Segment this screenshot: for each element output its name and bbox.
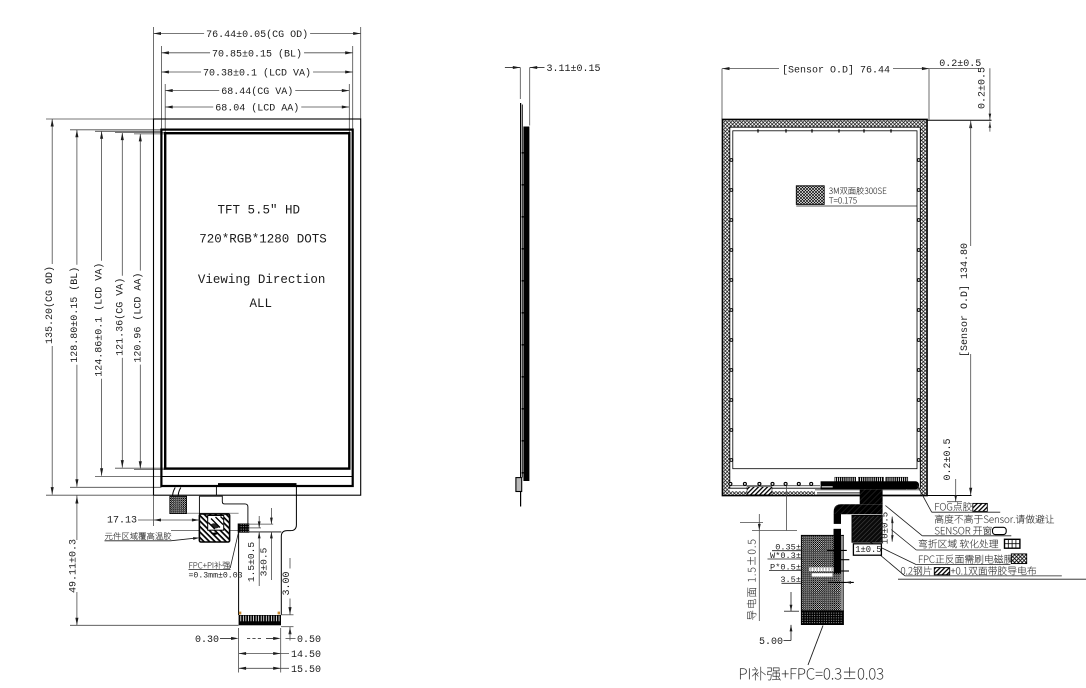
svg-text:1.5±0.5: 1.5±0.5 bbox=[246, 542, 257, 583]
svg-text:Viewing Direction: Viewing Direction bbox=[198, 273, 326, 287]
svg-text:17.13: 17.13 bbox=[107, 516, 137, 527]
svg-text:76.44±0.05(CG OD): 76.44±0.05(CG OD) bbox=[206, 29, 308, 41]
svg-text:68.04 (LCD AA): 68.04 (LCD AA) bbox=[215, 103, 299, 115]
svg-text:124.86±0.1 (LCD VA): 124.86±0.1 (LCD VA) bbox=[94, 263, 106, 377]
svg-text:[Sensor O.D] 76.44: [Sensor O.D] 76.44 bbox=[782, 64, 890, 76]
svg-text:[Sensor O.D] 134.80: [Sensor O.D] 134.80 bbox=[959, 243, 971, 357]
svg-text:3.11±0.15: 3.11±0.15 bbox=[547, 64, 601, 75]
svg-text:70.85±0.15 (BL): 70.85±0.15 (BL) bbox=[212, 48, 302, 60]
svg-text:ALL: ALL bbox=[249, 297, 272, 311]
svg-text:70.38±0.1 (LCD VA): 70.38±0.1 (LCD VA) bbox=[203, 68, 311, 80]
svg-text:15.50: 15.50 bbox=[291, 665, 321, 676]
svg-text:0.2±0.5: 0.2±0.5 bbox=[939, 59, 981, 70]
svg-text:14.50: 14.50 bbox=[291, 650, 321, 661]
svg-text:TFT 5.5″ HD: TFT 5.5″ HD bbox=[218, 204, 301, 218]
svg-text:1±0.5: 1±0.5 bbox=[855, 545, 881, 555]
svg-text:120.96 (LCD AA): 120.96 (LCD AA) bbox=[132, 273, 144, 363]
svg-text:=0.3mm±0.03: =0.3mm±0.03 bbox=[189, 572, 243, 581]
svg-text:0.50: 0.50 bbox=[297, 635, 321, 646]
svg-text:0.2±0.5: 0.2±0.5 bbox=[943, 438, 954, 480]
svg-text:720*RGB*1280 DOTS: 720*RGB*1280 DOTS bbox=[199, 233, 327, 247]
svg-text:0.30: 0.30 bbox=[195, 635, 219, 646]
svg-text:128.80±0.15 (BL): 128.80±0.15 (BL) bbox=[69, 267, 81, 363]
svg-text:W*0.3±: W*0.3± bbox=[770, 551, 801, 561]
svg-text:10±0.5: 10±0.5 bbox=[880, 512, 890, 544]
svg-text:121.36(CG VA): 121.36(CG VA) bbox=[114, 278, 126, 356]
svg-text:49.11±0.3: 49.11±0.3 bbox=[69, 539, 80, 593]
svg-text:5.00: 5.00 bbox=[759, 637, 783, 648]
svg-text:3.00: 3.00 bbox=[282, 571, 293, 595]
svg-text:135.20(CG OD): 135.20(CG OD) bbox=[44, 266, 56, 344]
svg-text:68.44(CG VA): 68.44(CG VA) bbox=[221, 86, 293, 98]
svg-text:3±0.5: 3±0.5 bbox=[259, 547, 270, 576]
svg-text:0.2±0.5: 0.2±0.5 bbox=[977, 67, 988, 109]
